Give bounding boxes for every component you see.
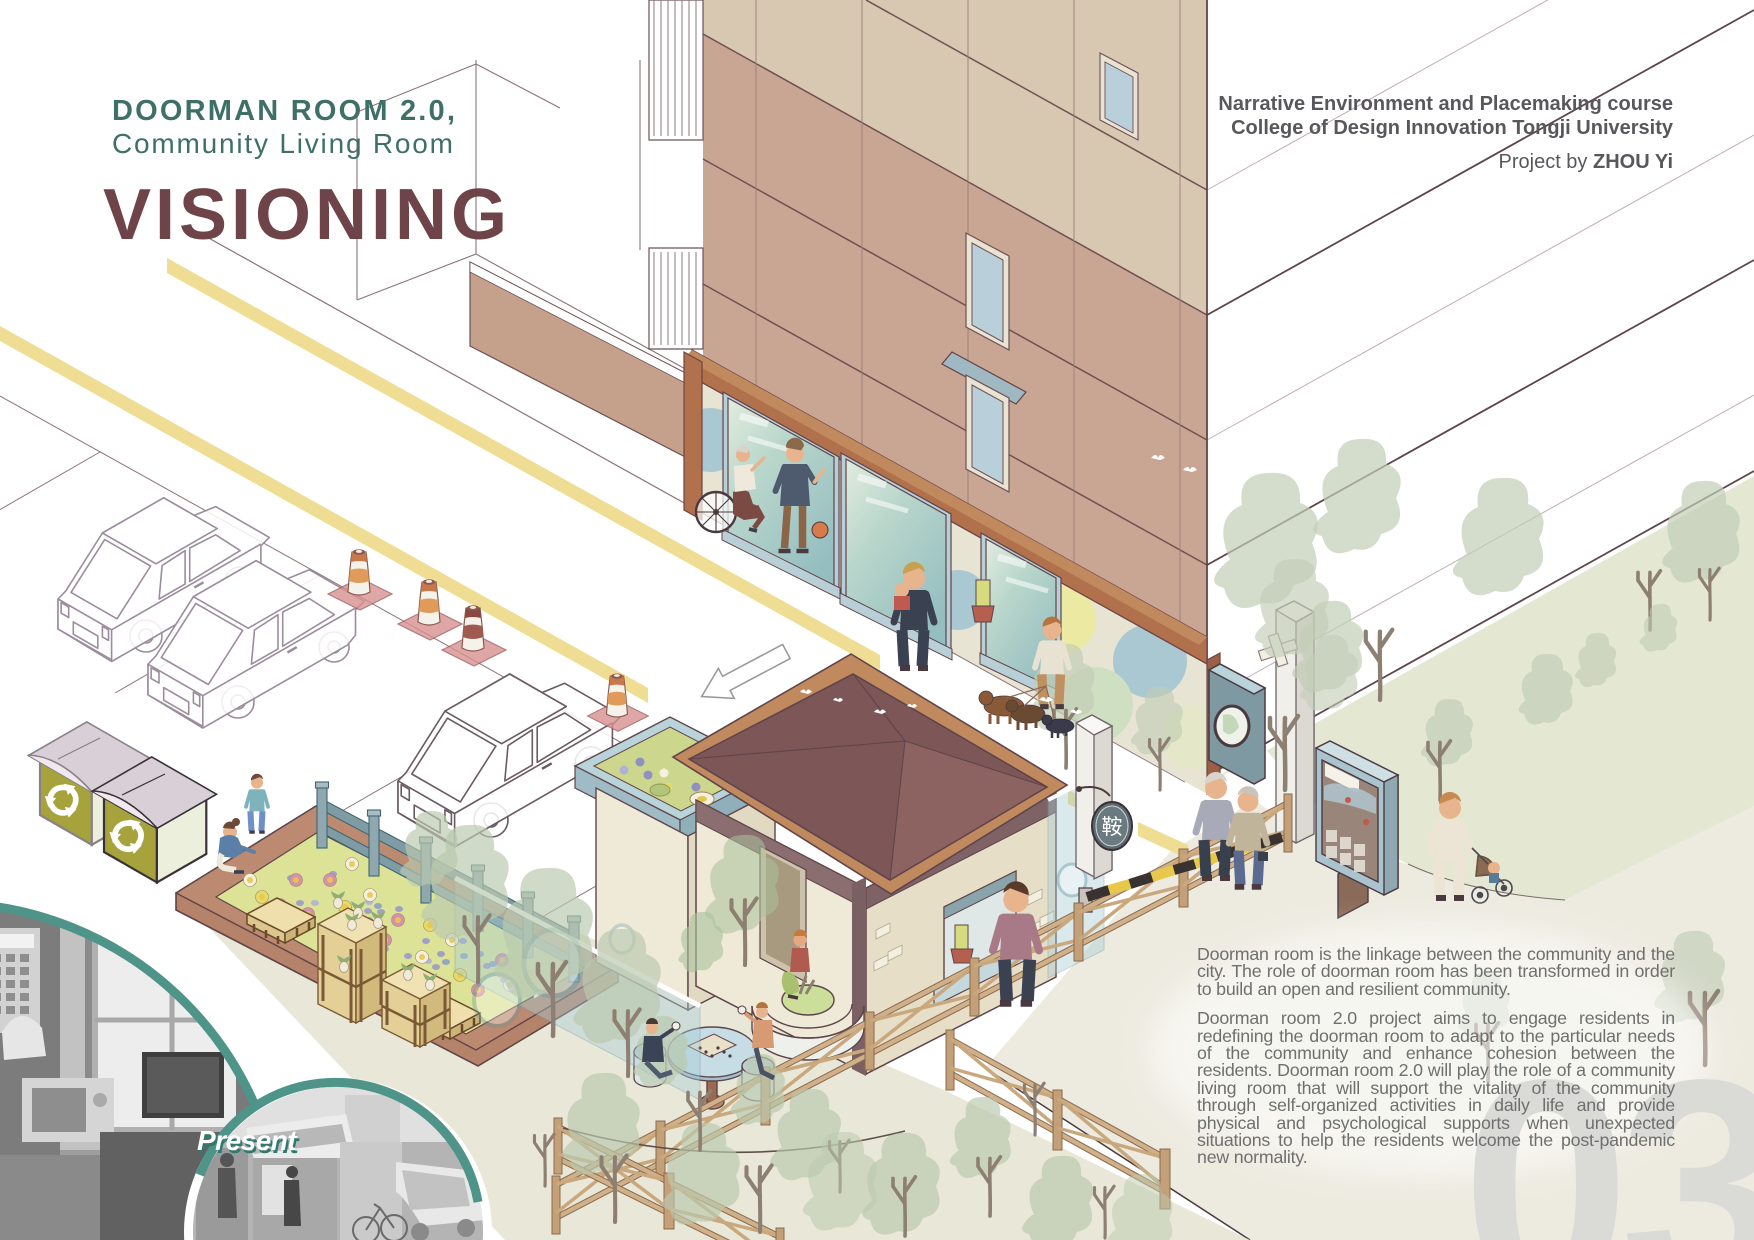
svg-text:Project by ZHOU Yi: Project by ZHOU Yi <box>1499 151 1674 173</box>
svg-text:DOORMAN ROOM 2.0,: DOORMAN ROOM 2.0, <box>112 95 457 127</box>
svg-text:College of Design Innovation T: College of Design Innovation Tongji Univ… <box>1231 117 1674 139</box>
svg-text:VISIONING: VISIONING <box>103 175 511 255</box>
svg-text:Narrative Environment and Plac: Narrative Environment and Placemaking co… <box>1218 93 1673 115</box>
svg-text:Present: Present <box>197 1125 298 1156</box>
svg-text:Community Living Room: Community Living Room <box>112 128 455 159</box>
svg-text:鞍: 鞍 <box>1102 816 1123 839</box>
